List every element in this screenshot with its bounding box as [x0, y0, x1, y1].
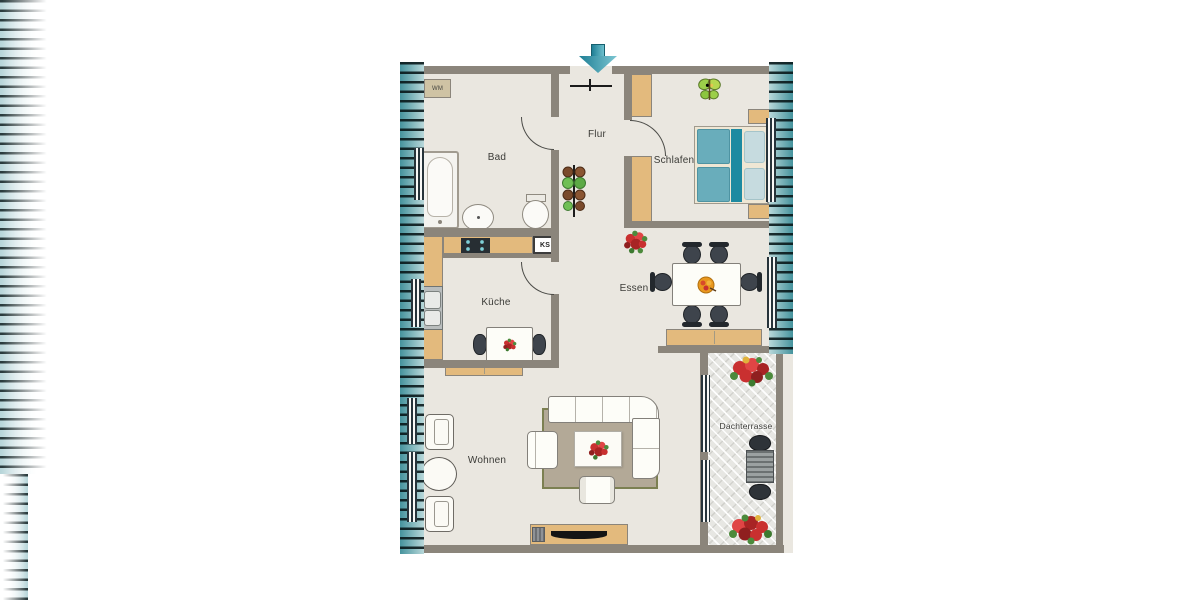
sofa-stool — [579, 476, 615, 504]
dining-chair-1 — [683, 245, 701, 264]
kitchen-table — [486, 327, 533, 362]
wall-kitchen-east-a — [551, 236, 559, 262]
window-terrace-a — [701, 375, 710, 452]
dining-chair-2 — [710, 245, 728, 264]
tv-device — [532, 527, 545, 542]
terrace-chair-top — [749, 435, 771, 451]
wardrobe-a — [631, 74, 652, 117]
wall-essen-south — [658, 346, 780, 353]
terrace-flowers-top-icon — [728, 356, 774, 388]
room-label-essen: Essen — [609, 284, 659, 294]
window-kueche-left — [411, 279, 421, 327]
wall-bad-south — [405, 228, 558, 236]
flower-icon — [502, 337, 518, 353]
nightstand-b — [748, 204, 770, 219]
armchair-a — [425, 414, 454, 450]
kitchen-sink-basin-2 — [424, 310, 441, 326]
washing-machine: WM — [424, 79, 451, 98]
armchair-b — [425, 496, 454, 532]
bed-mattress-b — [697, 167, 730, 202]
wall-schlafen-south — [624, 221, 780, 228]
tv-screen — [551, 531, 607, 539]
wall-bottom — [400, 545, 784, 553]
window-bad-left — [414, 148, 424, 200]
window-wohnen-left-a — [407, 398, 417, 444]
room-label-dachterrasse: Dachterrasse — [713, 422, 779, 431]
terrace-flowers-bottom-icon — [726, 514, 774, 546]
bed-pillow-a — [744, 131, 765, 163]
wall-kitchen-east-b — [551, 294, 559, 368]
plant-shelf-icon — [561, 165, 587, 217]
dining-table — [672, 263, 741, 306]
wall-kitchen-south — [417, 360, 558, 368]
bed-blanket-strip — [731, 129, 742, 202]
sideboard — [666, 329, 762, 346]
room-label-schlafen: Schlafen — [644, 156, 704, 166]
room-label-kueche: Küche — [471, 298, 521, 308]
wall-flur-schlafen-a — [624, 66, 632, 120]
wall-bad-flur-b — [551, 150, 559, 236]
roof-hatch-right-fade-schlafen — [0, 474, 28, 600]
entry-door-line — [570, 85, 612, 87]
window-terrace-b — [701, 460, 710, 522]
terrace-table — [746, 450, 774, 483]
kitchen-sink-basin-1 — [424, 291, 441, 309]
washing-machine-label: WM — [425, 86, 450, 92]
kitchen-chair-right — [532, 334, 546, 355]
bathtub-drain — [438, 220, 442, 224]
dining-chair-6 — [740, 273, 759, 291]
wall-top-right — [612, 66, 793, 74]
bed-pillow-b — [744, 168, 765, 200]
flower-pot-icon — [623, 228, 649, 256]
terrace-chair-bottom — [749, 484, 771, 500]
coffee-table — [574, 431, 622, 467]
window-schlafen-right — [766, 118, 776, 202]
wall-top-left — [400, 66, 570, 74]
kitchen-chair-left — [473, 334, 487, 355]
bathroom-sink — [462, 204, 494, 231]
toilet — [522, 200, 549, 229]
entrance-arrow-icon — [579, 44, 617, 74]
bathtub-basin — [427, 157, 453, 217]
sofa-left-seat — [527, 431, 558, 469]
side-table-round — [421, 457, 457, 491]
butterfly-icon — [697, 76, 722, 103]
entrance-arrow-shaft — [591, 44, 605, 57]
fruit-bowl-icon — [696, 275, 718, 295]
wall-bad-flur-a — [551, 66, 559, 117]
room-label-flur: Flur — [577, 130, 617, 140]
wall-terrace-right — [776, 353, 783, 545]
counter-front-edge — [443, 254, 557, 258]
flower-icon — [588, 439, 610, 461]
entrance-arrow-head — [579, 56, 617, 73]
window-wohnen-left-b — [407, 452, 417, 522]
window-essen-right — [767, 257, 777, 328]
stove — [461, 238, 490, 253]
wall-flur-schlafen-b — [624, 156, 632, 228]
bathtub — [421, 151, 459, 229]
sofa-right-run — [632, 418, 660, 479]
dining-chair-4 — [710, 305, 728, 324]
roof-hatch-left-fade — [0, 0, 52, 474]
sink-drain — [477, 216, 480, 219]
dining-chair-3 — [683, 305, 701, 324]
floor-plan-canvas: WM KS — [0, 0, 1200, 600]
entry-door-tick — [589, 79, 591, 91]
room-label-wohnen: Wohnen — [462, 456, 512, 466]
room-label-bad: Bad — [477, 153, 517, 163]
